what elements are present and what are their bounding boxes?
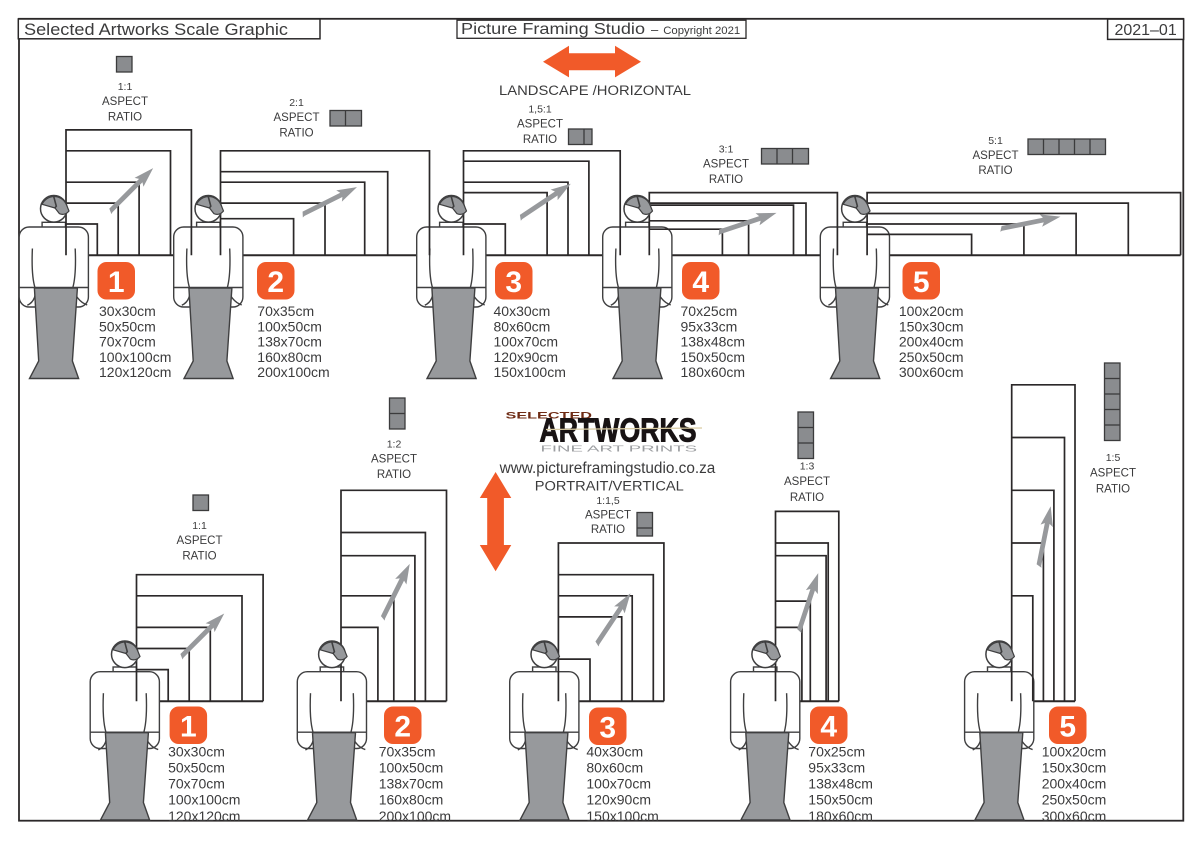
svg-text:70x25cm95x33cm138x48cm150x50cm: 70x25cm95x33cm138x48cm150x50cm180x60cm <box>681 303 746 380</box>
svg-text:RATIO: RATIO <box>591 524 625 536</box>
svg-text:FINE ART PRINTS: FINE ART PRINTS <box>541 444 698 454</box>
svg-text:ASPECT: ASPECT <box>517 119 563 131</box>
svg-text:1:3: 1:3 <box>800 461 815 473</box>
svg-text:www.pictureframingstudio.co.za: www.pictureframingstudio.co.za <box>499 460 716 477</box>
svg-text:5: 5 <box>913 266 930 299</box>
svg-text:2:1: 2:1 <box>289 97 304 109</box>
svg-text:RATIO: RATIO <box>523 134 557 146</box>
svg-text:ASPECT: ASPECT <box>102 96 148 108</box>
svg-text:1:1,5: 1:1,5 <box>596 495 620 507</box>
svg-text:RATIO: RATIO <box>790 492 824 504</box>
svg-text:5:1: 5:1 <box>988 135 1003 147</box>
svg-text:ASPECT: ASPECT <box>703 159 749 171</box>
svg-text:RATIO: RATIO <box>182 550 216 562</box>
svg-text:1: 1 <box>180 711 197 744</box>
svg-text:RATIO: RATIO <box>709 174 743 186</box>
svg-text:4: 4 <box>692 266 709 299</box>
svg-text:RATIO: RATIO <box>978 165 1012 177</box>
svg-text:1,5:1: 1,5:1 <box>528 104 552 116</box>
svg-text:RATIO: RATIO <box>279 127 313 139</box>
svg-text:2021–01: 2021–01 <box>1114 22 1176 39</box>
svg-text:PORTRAIT/VERTICAL: PORTRAIT/VERTICAL <box>535 479 685 494</box>
svg-text:1: 1 <box>108 266 125 299</box>
svg-text:Selected Artworks Scale Graphi: Selected Artworks Scale Graphic <box>24 20 289 39</box>
svg-text:3: 3 <box>599 712 616 745</box>
svg-text:2: 2 <box>394 711 411 744</box>
svg-text:70x25cm95x33cm138x48cm150x50cm: 70x25cm95x33cm138x48cm150x50cm180x60cm <box>808 743 873 823</box>
svg-text:1:2: 1:2 <box>387 439 402 451</box>
svg-text:ASPECT: ASPECT <box>273 112 319 124</box>
svg-text:1:5: 1:5 <box>1106 452 1121 464</box>
svg-text:ASPECT: ASPECT <box>371 454 417 466</box>
svg-text:ASPECT: ASPECT <box>585 509 631 521</box>
svg-text:3: 3 <box>505 266 522 299</box>
svg-text:RATIO: RATIO <box>108 111 142 123</box>
svg-text:1:1: 1:1 <box>192 520 207 532</box>
svg-text:100x20cm150x30cm200x40cm250x50: 100x20cm150x30cm200x40cm250x50cm300x60cm <box>1042 743 1107 823</box>
svg-text:2: 2 <box>267 266 284 299</box>
svg-text:4: 4 <box>820 711 837 744</box>
svg-text:3:1: 3:1 <box>719 144 734 156</box>
svg-text:RATIO: RATIO <box>1096 484 1130 496</box>
svg-text:1:1: 1:1 <box>118 81 133 93</box>
svg-text:RATIO: RATIO <box>377 469 411 481</box>
svg-text:100x20cm150x30cm200x40cm250x50: 100x20cm150x30cm200x40cm250x50cm300x60cm <box>899 303 964 380</box>
svg-text:LANDSCAPE /HORIZONTAL: LANDSCAPE /HORIZONTAL <box>499 83 692 98</box>
svg-text:ASPECT: ASPECT <box>1090 468 1136 480</box>
svg-text:5: 5 <box>1059 711 1076 744</box>
svg-text:ASPECT: ASPECT <box>176 535 222 547</box>
svg-text:ASPECT: ASPECT <box>972 150 1018 162</box>
svg-text:ASPECT: ASPECT <box>784 476 830 488</box>
